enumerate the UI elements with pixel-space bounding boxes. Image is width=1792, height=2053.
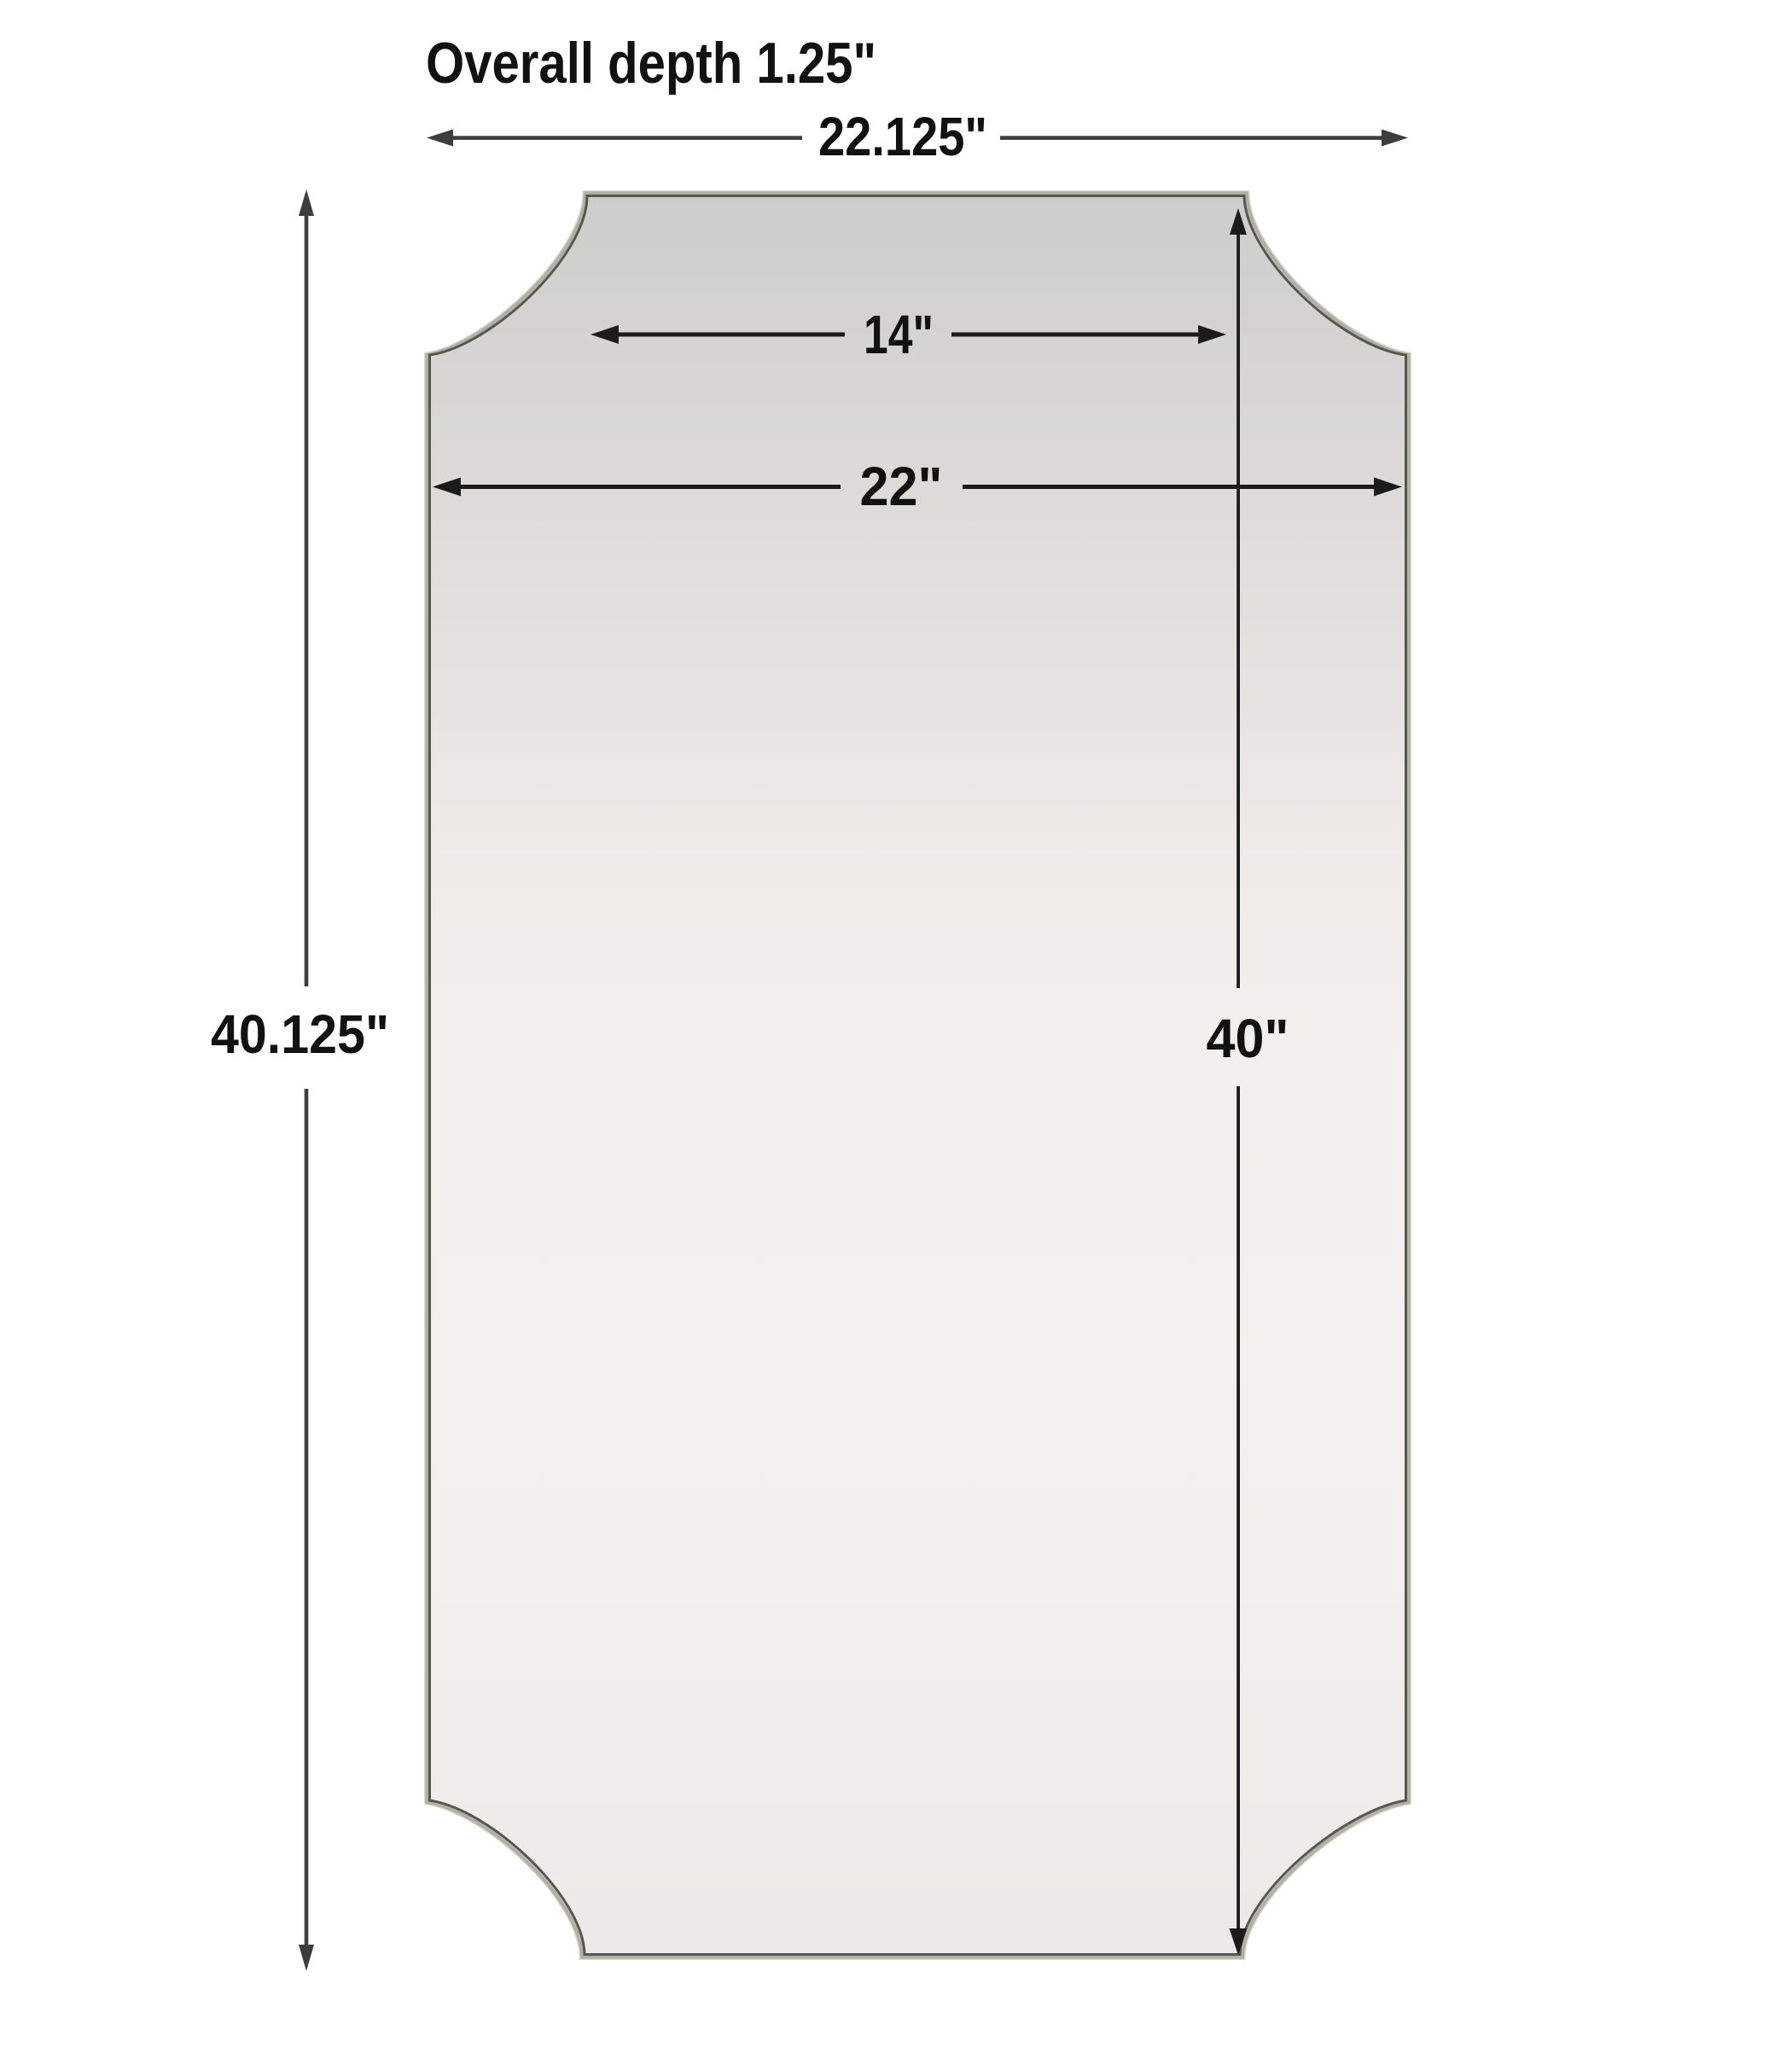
- svg-text:14": 14": [864, 304, 934, 365]
- svg-text:40": 40": [1207, 1008, 1289, 1069]
- svg-text:40.125": 40.125": [211, 1003, 389, 1065]
- svg-text:22": 22": [860, 456, 943, 517]
- svg-text:22.125": 22.125": [818, 106, 987, 167]
- svg-text:Overall depth 1.25": Overall depth 1.25": [426, 31, 876, 96]
